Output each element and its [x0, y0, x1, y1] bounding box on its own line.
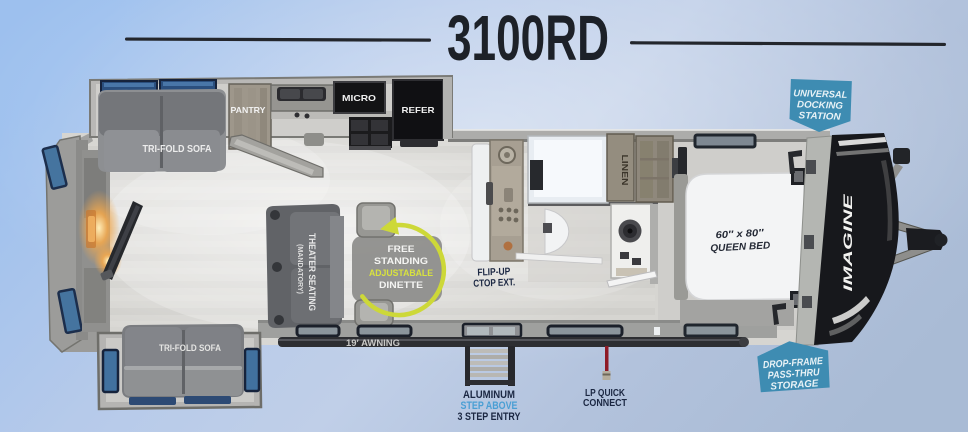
svg-text:3100RD: 3100RD	[447, 2, 609, 74]
svg-text:ADJUSTABALE: ADJUSTABALE	[369, 268, 433, 279]
svg-text:(MANDATORY): (MANDATORY)	[296, 244, 305, 294]
svg-text:THEATER SEATING: THEATER SEATING	[307, 233, 317, 311]
svg-text:IMAGINE: IMAGINE	[843, 194, 855, 292]
svg-text:REFER: REFER	[402, 105, 435, 115]
svg-text:TRI-FOLD SOFA: TRI-FOLD SOFA	[143, 144, 212, 155]
svg-text:STATION: STATION	[798, 110, 842, 122]
svg-text:FREE: FREE	[388, 244, 415, 255]
svg-text:CTOP EXT.: CTOP EXT.	[473, 277, 516, 289]
svg-text:DINETTE: DINETTE	[379, 280, 423, 291]
svg-text:STANDING: STANDING	[374, 256, 428, 267]
svg-text:3 STEP ENTRY: 3 STEP ENTRY	[458, 411, 522, 423]
svg-text:TRI-FOLD SOFA: TRI-FOLD SOFA	[159, 343, 221, 353]
svg-text:CONNECT: CONNECT	[583, 397, 627, 409]
svg-text:MICRO: MICRO	[342, 93, 376, 103]
svg-text:19′ AWNING: 19′ AWNING	[346, 338, 400, 348]
svg-text:LINEN: LINEN	[620, 155, 630, 186]
svg-text:PANTRY: PANTRY	[231, 105, 266, 115]
